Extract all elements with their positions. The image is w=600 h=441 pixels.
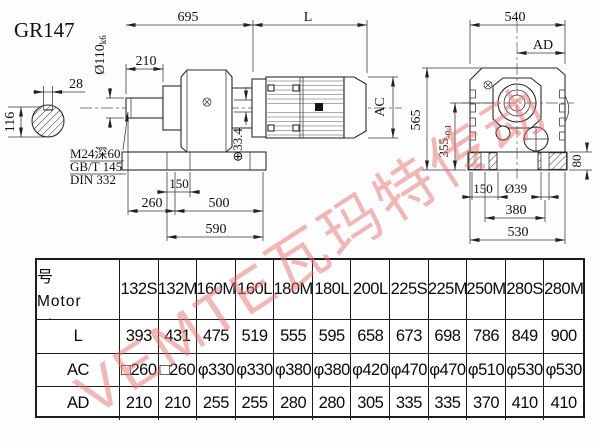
dim-label-80: 80 [569,155,584,168]
table-cell: 393 [120,320,159,354]
table-cell: □260 [120,354,159,387]
table-row-label: AC [37,354,120,387]
table-col-header: 132S [120,260,159,320]
gearbox-end-view: 540 AD 565 355-0.1 80 150 Ø39 [409,10,592,244]
dim-label-dia110: Ø110k6 [93,35,108,75]
technical-drawing: GR147 28 116 [0,0,600,256]
table-cell: 210 [159,387,198,420]
table-cell: 335 [429,387,468,420]
table-col-header: 180L [313,260,352,320]
table-header-motor-size: Y2电机机座号Motor Size [37,260,120,320]
dim-label-150-front: 150 [169,176,189,191]
dim-label-260: 260 [142,196,163,211]
table-cell: 280 [313,387,352,420]
dim-label-dia39: Ø39 [505,181,527,196]
gearmotor-side-view: Ø110k6 210 695 L M24深60 GB/T 145 DIN 332… [70,10,402,241]
table-row-label: L [37,320,120,354]
table-cell: φ420 [351,354,390,387]
table-cell: φ380 [313,354,352,387]
table-cell: φ470 [390,354,429,387]
table-cell: 595 [313,320,352,354]
table-col-header: 132M [159,260,198,320]
table-cell: φ470 [429,354,468,387]
table-cell: φ330 [236,354,275,387]
table-cell: 475 [197,320,236,354]
table-col-header: 160M [197,260,236,320]
table-cell: 255 [197,387,236,420]
table-col-header: 225S [390,260,429,320]
table-cell: 210 [120,387,159,420]
motor-size-table: Y2电机机座号Motor Size132S132M160M160L180M180… [35,258,585,418]
dim-label-565: 565 [409,110,424,131]
table-col-header: 160L [236,260,275,320]
table-cell: 255 [236,387,275,420]
dim-label-116: 116 [3,112,18,132]
table-cell: 673 [390,320,429,354]
table-cell: φ510 [467,354,506,387]
dim-label-28: 28 [69,77,83,92]
dim-label-L: L [304,10,313,25]
dim-label-150-side: 150 [473,181,493,196]
table-cell: 370 [467,387,506,420]
shaft-section-view: 28 116 [3,77,85,137]
dim-label-500: 500 [209,196,230,211]
dim-label-AC: AC [373,97,388,116]
table-cell: 658 [351,320,390,354]
table-col-header: 225M [429,260,468,320]
dim-label-530: 530 [508,225,529,240]
table-header-en: Motor Size [37,290,119,320]
table-cell: 698 [429,320,468,354]
dim-label-540: 540 [505,10,526,25]
table-col-header: 280S [506,260,545,320]
table-cell: φ530 [544,354,583,387]
table-header-cn: Y2电机机座号 [37,260,119,290]
table-cell: □260 [159,354,198,387]
table-cell: 849 [506,320,545,354]
drawing-title: GR147 [14,18,75,42]
table-cell: 305 [351,387,390,420]
table-cell: 519 [236,320,275,354]
dim-label-210: 210 [136,54,157,69]
dim-label-590: 590 [206,222,227,237]
table-cell: 280 [274,387,313,420]
table-cell: 555 [274,320,313,354]
table-cell: 900 [544,320,583,354]
table-col-header: 250M [467,260,506,320]
dim-label-AD: AD [533,38,553,53]
table-cell: 786 [467,320,506,354]
dim-label-695: 695 [178,10,199,25]
table-cell: φ330 [197,354,236,387]
table-cell: 410 [544,387,583,420]
table-cell: 410 [506,387,545,420]
dim-label-355: 355-0.1 [436,125,453,158]
dim-label-380: 380 [506,203,527,218]
table-col-header: 180M [274,260,313,320]
table-cell: φ530 [506,354,545,387]
table-col-header: 200L [351,260,390,320]
table-cell: 431 [159,320,198,354]
table-cell: φ380 [274,354,313,387]
thread-note-line3: DIN 332 [70,172,116,187]
table-col-header: 280M [544,260,583,320]
catalog-page: GR147 28 116 [0,0,600,441]
table-cell: 335 [390,387,429,420]
dim-label-33-4: ⊕33.4 [230,128,245,162]
table-row-label: AD [37,387,120,420]
